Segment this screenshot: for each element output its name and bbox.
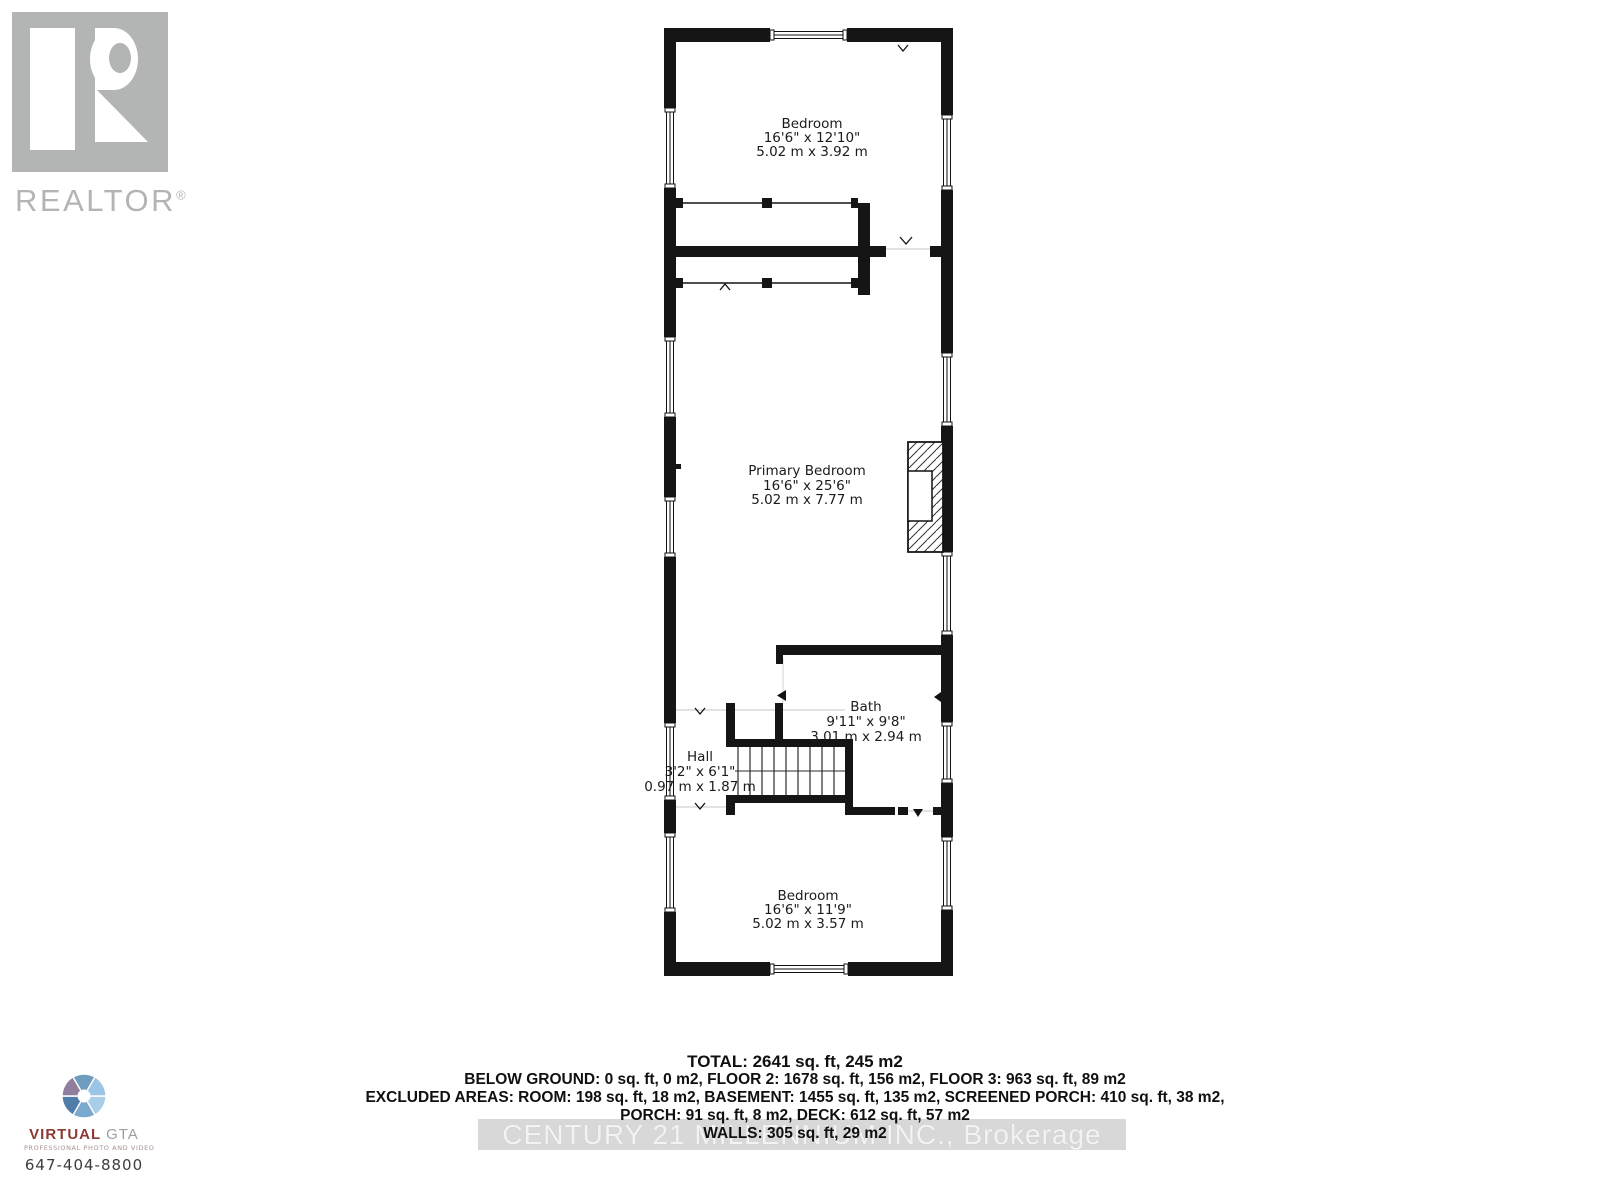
realtor-wordmark: REALTOR®: [15, 183, 186, 219]
window: [940, 353, 955, 426]
area-summary: TOTAL: 2641 sq. ft, 245 m2 BELOW GROUND:…: [0, 1052, 1590, 1143]
floor-plan-page: { "branding": { "logo_text": "REALTOR", …: [0, 0, 1600, 1200]
window: [663, 337, 678, 417]
room-metric: 3.01 m x 2.94 m: [810, 729, 922, 745]
excluded-area-line: EXCLUDED AREAS: ROOM: 198 sq. ft, 18 m2,…: [0, 1089, 1590, 1107]
room-imperial: 9'11" x 9'8": [826, 714, 905, 730]
window: [663, 108, 678, 188]
window: [663, 833, 678, 912]
room-imperial: 3'2" x 6'1": [665, 764, 736, 780]
room-metric: 5.02 m x 3.92 m: [756, 144, 868, 160]
window: [663, 497, 678, 557]
total-area-line: TOTAL: 2641 sq. ft, 245 m2: [0, 1052, 1590, 1071]
window: [940, 722, 955, 783]
floor-plan: Bedroom 16'6" x 12'10" 5.02 m x 3.92 m P…: [0, 0, 1600, 1200]
room-metric: 5.02 m x 7.77 m: [751, 492, 863, 508]
photographer-tagline: PROFESSIONAL PHOTO AND VIDEO: [24, 1144, 144, 1152]
room-name: Primary Bedroom: [748, 463, 866, 479]
porch-deck-line: PORCH: 91 sq. ft, 8 m2, DECK: 612 sq. ft…: [0, 1107, 1590, 1125]
room-metric: 5.02 m x 3.57 m: [752, 916, 864, 932]
closet-doors: [676, 198, 858, 288]
realtor-block-r-icon: [12, 12, 168, 172]
registered-mark: ®: [176, 188, 186, 203]
window: [940, 115, 955, 190]
floors-area-line: BELOW GROUND: 0 sq. ft, 0 m2, FLOOR 2: 1…: [0, 1071, 1590, 1089]
realtor-logo: REALTOR®: [12, 12, 186, 219]
window: [940, 837, 955, 910]
fireplace-icon: [908, 442, 943, 552]
window: [940, 552, 955, 635]
room-metric: 0.97 m x 1.87 m: [644, 779, 756, 795]
window: [770, 28, 847, 43]
walls-area-line: WALLS: 305 sq. ft, 29 m2: [0, 1125, 1590, 1143]
room-name: Bath: [850, 699, 881, 715]
photographer-phone: 647-404-8800: [24, 1156, 144, 1174]
room-name: Hall: [687, 749, 713, 765]
door-marks: [695, 45, 941, 817]
window: [770, 962, 848, 977]
